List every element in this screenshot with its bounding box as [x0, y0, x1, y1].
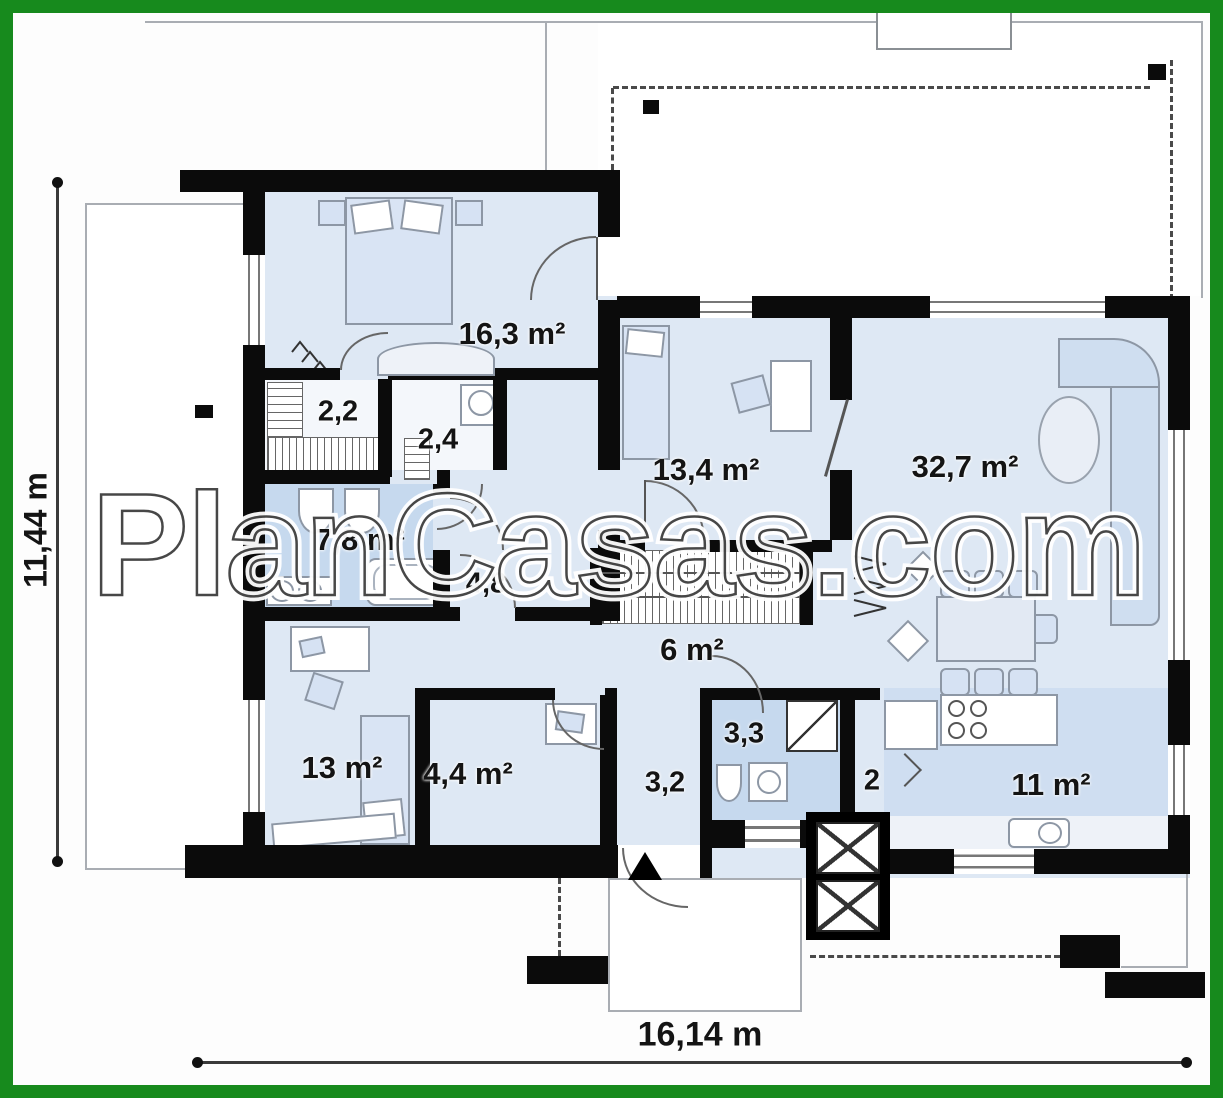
wall	[840, 688, 855, 820]
pillow	[625, 328, 666, 358]
wall	[1168, 318, 1190, 430]
nightstand	[455, 200, 483, 226]
door-leaf	[596, 237, 598, 300]
dining-chair	[974, 668, 1004, 696]
wall	[243, 192, 265, 255]
hob-burner	[970, 722, 987, 739]
terrace-line	[1121, 966, 1188, 968]
room-label-bathroom-main: 7,8 m²	[315, 522, 405, 558]
frame-border-left	[0, 0, 13, 1098]
terrace-top-right	[598, 22, 1203, 296]
terrace-line	[1186, 874, 1188, 968]
bathtub-inner	[373, 564, 439, 600]
wall	[700, 820, 712, 878]
wall	[243, 345, 265, 700]
terrace-pillar	[1060, 935, 1120, 968]
wall	[1168, 815, 1190, 874]
hob-burner	[970, 700, 987, 717]
room-label-hall-bedrooms: 4,8	[466, 568, 506, 601]
wardrobe-end-cap	[590, 548, 602, 625]
wardrobe-end-cap	[800, 548, 813, 625]
canopy-post	[643, 100, 659, 114]
terrace-pillar	[1105, 972, 1205, 998]
wall	[433, 550, 450, 607]
dining-chair	[940, 668, 970, 696]
dimension-height-label: 11,44 m	[18, 472, 55, 588]
wall	[378, 379, 392, 477]
sink-bowl	[1038, 822, 1062, 844]
room-label-living-room: 32,7 m²	[912, 449, 1019, 485]
sink-bowl	[270, 580, 294, 602]
wall	[1105, 296, 1190, 318]
closet-wardrobe	[267, 437, 379, 471]
dining-chair	[1008, 570, 1038, 598]
pillow	[400, 199, 444, 234]
site-marker	[195, 405, 213, 418]
wall	[415, 688, 555, 700]
wall	[265, 368, 340, 380]
storage-closet-box	[816, 822, 880, 874]
shower	[786, 700, 838, 752]
wall	[180, 170, 620, 192]
window	[954, 849, 1034, 874]
storage-closet-box	[816, 880, 880, 932]
room-label-bedroom-2: 13,4 m²	[653, 452, 760, 488]
canopy-dashed-line	[611, 88, 614, 170]
wall	[265, 607, 460, 621]
porch-pillar	[527, 956, 608, 984]
room-label-utility: 4,4 m²	[423, 756, 513, 792]
entrance-arrow-icon	[628, 852, 662, 880]
roof-overhang-line	[545, 21, 547, 170]
radiator-icon	[846, 550, 896, 624]
room-label-closet: 2,2	[318, 396, 358, 429]
roof-overhang-line	[145, 21, 1203, 23]
room-label-wc: 2,4	[418, 424, 458, 457]
wall	[437, 470, 450, 484]
pillow	[350, 199, 394, 234]
room-label-bathroom-2: 3,3	[724, 718, 764, 751]
chimney	[876, 10, 1012, 50]
wall	[1034, 849, 1168, 874]
floor-plan-canvas: 16,3 m² 2,2 2,4 7,8 m² 4,8 13,4 m² 32,7 …	[0, 0, 1223, 1098]
dimension-dot	[1181, 1057, 1192, 1068]
dimension-line-horizontal	[197, 1061, 1186, 1064]
hob-burner	[948, 722, 965, 739]
room-label-storage: 2	[864, 765, 880, 798]
wall	[598, 170, 620, 237]
window	[243, 700, 265, 812]
wall	[620, 540, 645, 552]
porch-dashed-line	[558, 878, 561, 956]
entry-porch-outline	[608, 878, 802, 1012]
window	[1168, 430, 1190, 660]
room-label-hall-central: 6 m²	[660, 632, 724, 668]
dimension-width-label: 16,14 m	[638, 1016, 763, 1055]
dining-chair	[974, 570, 1004, 598]
frame-border-right	[1210, 0, 1223, 1098]
room-label-bedroom-main: 16,3 m²	[459, 316, 566, 352]
dining-chair	[940, 570, 970, 598]
window	[1168, 745, 1190, 815]
door-leaf	[644, 480, 646, 538]
wall	[752, 296, 930, 318]
wardrobe-rod	[602, 596, 800, 598]
wall	[598, 300, 620, 470]
terrace-left-outline	[85, 203, 246, 870]
washing-machine-door	[757, 770, 781, 794]
wall	[185, 845, 618, 878]
wall	[265, 470, 390, 484]
dimension-dot	[52, 856, 63, 867]
hob-burner	[948, 700, 965, 717]
wall	[830, 470, 852, 540]
canopy-post	[1148, 64, 1166, 80]
desk	[770, 360, 812, 432]
room-label-kitchen: 11 m²	[1011, 767, 1090, 803]
window	[243, 255, 265, 345]
rug	[1038, 396, 1100, 484]
sink-bowl	[298, 580, 322, 602]
roof-overhang-line	[1201, 21, 1203, 298]
wall	[493, 379, 507, 470]
dimension-dot	[52, 177, 63, 188]
canopy-dashed-line	[1170, 60, 1173, 300]
sofa	[1110, 386, 1160, 626]
room-label-bedroom-3: 13 m²	[302, 750, 383, 786]
toilet	[716, 764, 742, 802]
frame-border-bottom	[0, 1085, 1223, 1098]
wall	[617, 296, 700, 318]
washbasin-bowl	[468, 390, 494, 416]
hall-wardrobe	[602, 550, 802, 624]
kitchen-cabinet	[884, 700, 938, 750]
dining-table	[936, 596, 1036, 662]
window	[700, 296, 752, 318]
dining-chair	[1008, 668, 1038, 696]
dimension-line-vertical	[56, 182, 59, 862]
dimension-dot	[192, 1057, 203, 1068]
window	[745, 820, 800, 848]
canopy-dashed-line	[613, 86, 1150, 89]
wall	[830, 318, 852, 400]
nightstand	[318, 200, 346, 226]
frame-border-top	[0, 0, 1223, 13]
window	[930, 296, 1105, 318]
terrace-dashed-line	[810, 955, 1060, 958]
wardrobe-rod	[602, 572, 800, 574]
room-label-entry-hall: 3,2	[645, 767, 685, 800]
wall	[712, 820, 745, 848]
closet-shelves	[267, 382, 303, 438]
wall	[1168, 660, 1190, 745]
wall	[515, 607, 598, 621]
